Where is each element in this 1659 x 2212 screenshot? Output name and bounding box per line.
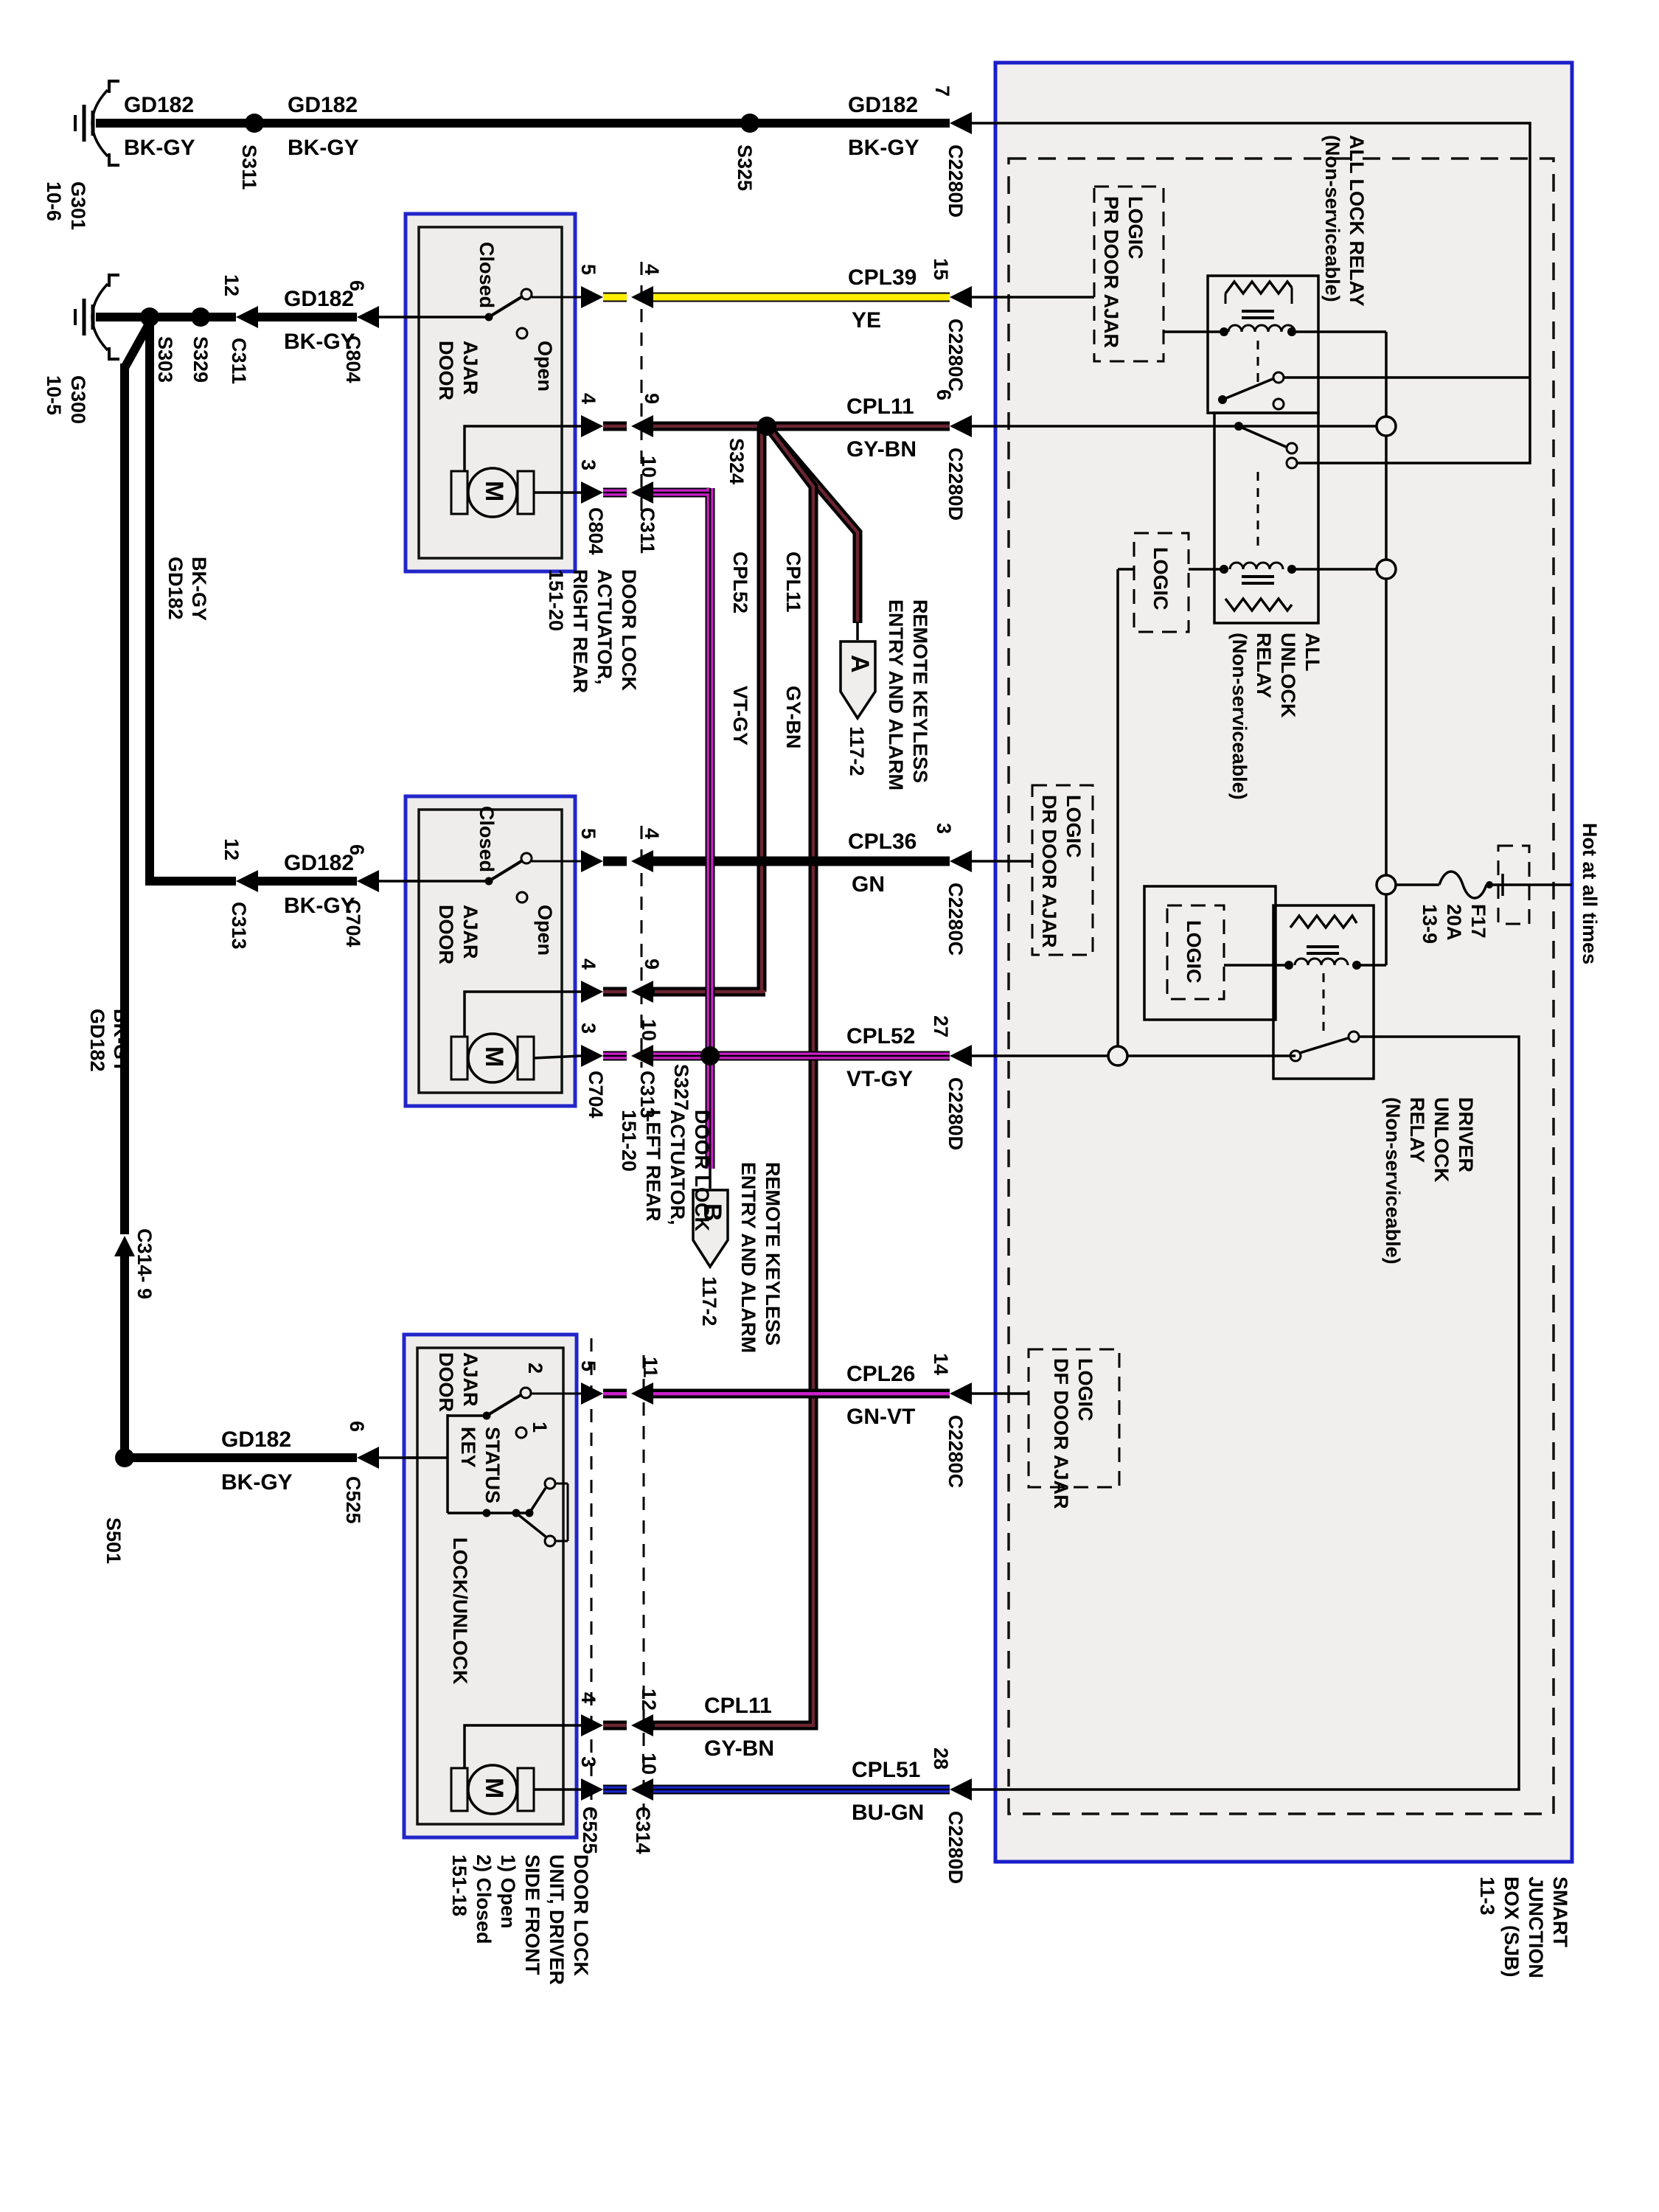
connector-arrow-icon bbox=[631, 1714, 653, 1736]
switch-position-label: Open bbox=[533, 905, 556, 956]
logic-line: DR DOOR AJAR bbox=[1037, 795, 1061, 948]
relay-name-line: ALL LOCK RELAY bbox=[1344, 135, 1368, 307]
pin-label: 4 bbox=[640, 828, 663, 839]
pin-label: 6 bbox=[345, 844, 368, 855]
splice-dot-s327 bbox=[700, 1046, 720, 1065]
pin-label: 12 bbox=[220, 274, 243, 296]
wire-label: GD182 bbox=[124, 93, 194, 118]
pin-arrow-icon bbox=[581, 1045, 603, 1067]
splice-dot-s325 bbox=[740, 114, 759, 133]
door-ajar-line: DOOR bbox=[434, 1352, 458, 1412]
switch-position-label: Closed bbox=[475, 242, 498, 308]
logic-line: PR DOOR AJAR bbox=[1099, 196, 1123, 348]
rke-page: 117-2 bbox=[845, 726, 868, 776]
pin-label: 28 bbox=[929, 1747, 952, 1770]
all-lock-relay-label: ALL LOCK RELAY (Non-serviceable) bbox=[1320, 135, 1368, 307]
sjb-name-line: BOX (SJB) bbox=[1499, 1877, 1523, 1978]
wire-color-label: GY-BN bbox=[704, 1736, 774, 1761]
connector-label: C311 bbox=[227, 338, 250, 384]
component-name-line: 1) Open bbox=[495, 1854, 520, 1985]
port-circle-icon bbox=[1377, 417, 1396, 436]
door-ajar-label: DOOR AJAR bbox=[434, 341, 482, 400]
switch-position-label: Open bbox=[533, 341, 556, 392]
relay-name-line: (Non-serviceable) bbox=[1320, 135, 1344, 307]
splice-dot-s311 bbox=[245, 114, 264, 133]
component-name: DOOR LOCK UNIT, DRIVER SIDE FRONT 1) Ope… bbox=[447, 1854, 593, 1985]
splice-label: S325 bbox=[733, 145, 756, 191]
pin-label: 6 bbox=[932, 389, 955, 400]
wiring-diagram-page: { "wires": { "gd182": {"label": "GD182",… bbox=[0, 0, 1659, 2212]
fuse-line: F17 bbox=[1466, 904, 1490, 944]
relay-name-line: (Non-serviceable) bbox=[1227, 633, 1251, 800]
connector-label: C525 bbox=[578, 1806, 601, 1854]
component-name-line: RIGHT REAR bbox=[568, 569, 592, 693]
splice-label: S327 bbox=[669, 1064, 692, 1110]
wire-color-label: VT-GY bbox=[728, 686, 751, 745]
rke-name-line: REMOTE KEYLESS bbox=[760, 1162, 785, 1353]
splice-dot-s324 bbox=[757, 417, 776, 436]
pin-arrow-icon bbox=[581, 850, 603, 872]
connector-arrow-icon bbox=[631, 1778, 653, 1801]
pin-label: 4 bbox=[640, 264, 663, 275]
door-lock-unit-box bbox=[404, 1335, 577, 1837]
connector-arrow-icon bbox=[950, 1778, 972, 1801]
door-ajar-line: AJAR bbox=[458, 1352, 482, 1412]
key-status-line: STATUS bbox=[480, 1427, 504, 1503]
splice-label: S303 bbox=[153, 336, 176, 383]
connector-label: C525 bbox=[341, 1476, 364, 1524]
connector-arrow-icon bbox=[950, 286, 972, 308]
connector-label: C2280C bbox=[944, 1415, 967, 1488]
pin-label: 9 bbox=[640, 393, 663, 404]
connector-label: C2280D bbox=[944, 1811, 967, 1884]
wire-color-label: GY-BN bbox=[782, 686, 804, 749]
logic-df-door-ajar-label: LOGIC DF DOOR AJAR bbox=[1048, 1358, 1097, 1509]
wire-label: CPL52 bbox=[728, 552, 751, 613]
wire-color-label: BK-GY bbox=[848, 136, 919, 161]
pin-label: 4 bbox=[577, 1692, 599, 1703]
splice-label: S324 bbox=[725, 438, 748, 484]
connector-label: C314 bbox=[631, 1806, 654, 1854]
connector-label: C2280C bbox=[944, 883, 967, 956]
pin-label: 4 bbox=[577, 959, 599, 970]
wire-color-label: BK-GY bbox=[124, 136, 195, 161]
wire-color-label: YE bbox=[852, 308, 881, 333]
splice-label: S501 bbox=[102, 1517, 125, 1564]
wire-label: CPL11 bbox=[782, 552, 804, 613]
motor-letter: M bbox=[479, 1778, 508, 1798]
component-name-line: ACTUATOR, bbox=[592, 569, 616, 693]
pin-label: 4 bbox=[577, 393, 599, 404]
connector-arrow-icon bbox=[236, 870, 258, 892]
connector-label: C704 bbox=[341, 900, 364, 947]
component-name-line: DOOR LOCK bbox=[616, 569, 641, 693]
wire-color-label: VT-GY bbox=[846, 1067, 913, 1092]
connector-arrow-icon bbox=[950, 850, 972, 872]
rke-name-line: ENTRY AND ALARM bbox=[883, 599, 908, 790]
component-name-line: 2) Closed bbox=[471, 1854, 495, 1985]
component-name-line: 151-18 bbox=[447, 1854, 471, 1985]
connector-arrow-icon bbox=[950, 1382, 972, 1405]
pin-arrow-icon bbox=[581, 286, 603, 308]
wire-color-label: BK-GY bbox=[221, 1470, 293, 1495]
pin-label: 9 bbox=[640, 959, 663, 970]
pin-label: 15 bbox=[929, 258, 952, 280]
connector-arrow-icon bbox=[631, 1382, 653, 1405]
door-ajar-line: AJAR bbox=[458, 905, 482, 964]
relay-name-line: UNLOCK bbox=[1429, 1097, 1453, 1265]
ground-id: G301 bbox=[66, 181, 90, 230]
connector-label: C313 bbox=[227, 902, 250, 950]
wire-label: GD182 bbox=[164, 557, 187, 620]
door-ajar-label: DOOR AJAR bbox=[434, 1352, 482, 1412]
door-ajar-line: DOOR bbox=[434, 341, 458, 400]
sjb-name-line: JUNCTION bbox=[1523, 1877, 1548, 1978]
connector-label: C2280D bbox=[944, 145, 967, 218]
component-name-line: DOOR LOCK bbox=[568, 1854, 593, 1985]
wire-color-label: GY-BN bbox=[846, 437, 917, 462]
hot-at-all-times-label: Hot at all times bbox=[1578, 823, 1601, 964]
pin-label: 3 bbox=[577, 1756, 599, 1767]
logic-line: DF DOOR AJAR bbox=[1048, 1358, 1073, 1509]
logic-line: LOGIC bbox=[1123, 196, 1147, 348]
connector-arrow-icon bbox=[950, 112, 972, 134]
wire-label: GD182 bbox=[284, 287, 354, 312]
wire-color-label: BK-GY bbox=[109, 1009, 132, 1073]
logic-label: LOGIC bbox=[1182, 920, 1205, 984]
splice-label: S311 bbox=[237, 145, 260, 190]
pin-arrow-icon bbox=[581, 415, 603, 437]
component-name: DOOR LOCK ACTUATOR, RIGHT REAR 151-20 bbox=[543, 569, 641, 693]
door-ajar-line: DOOR bbox=[434, 905, 458, 964]
pin-label: 5 bbox=[577, 1360, 599, 1371]
component-name-line: 151-20 bbox=[616, 1110, 641, 1231]
wire-label: CPL11 bbox=[846, 394, 914, 420]
rke-arrow-letter: A bbox=[845, 655, 874, 673]
pin-label: 7 bbox=[931, 86, 953, 97]
connector-label: C2280C bbox=[944, 319, 967, 392]
driver-unlock-relay-label: DRIVER UNLOCK RELAY (Non-serviceable) bbox=[1380, 1097, 1478, 1265]
pin-label: 1 bbox=[528, 1422, 551, 1433]
logic-label: LOGIC bbox=[1149, 547, 1172, 611]
relay-name-line: ALL bbox=[1300, 633, 1324, 800]
pin-label: 3 bbox=[932, 823, 955, 834]
pin-label: 3 bbox=[577, 459, 599, 470]
component-name-line: 151-20 bbox=[543, 569, 568, 693]
wire-label: CPL51 bbox=[852, 1758, 920, 1783]
pin-label: 2 bbox=[524, 1363, 546, 1374]
connector-label: C313 bbox=[636, 1071, 658, 1119]
pin-label: 5 bbox=[577, 828, 599, 839]
wire-color-label: GN-VT bbox=[846, 1405, 915, 1430]
relay-name-line: UNLOCK bbox=[1276, 633, 1300, 800]
connector-arrow-icon bbox=[114, 1236, 135, 1256]
port-circle-icon bbox=[1377, 560, 1396, 579]
rke-arrow-letter: B bbox=[698, 1203, 726, 1222]
component-name-line: LEFT REAR bbox=[641, 1110, 665, 1231]
wire-label: CPL39 bbox=[848, 265, 917, 291]
wire-label: CPL52 bbox=[846, 1024, 915, 1049]
pin-label: 12 bbox=[637, 1688, 660, 1711]
fuse-label: F17 20A 13-9 bbox=[1417, 904, 1490, 944]
port-circle-icon bbox=[1377, 875, 1396, 894]
key-status-line: KEY bbox=[456, 1427, 480, 1503]
wire-label: CPL11 bbox=[704, 1694, 772, 1719]
wire-cpl36-gn bbox=[581, 850, 1032, 872]
wire-color-label: BU-GN bbox=[852, 1801, 924, 1826]
connector-arrow-icon bbox=[357, 870, 379, 892]
fuse-line: 20A bbox=[1441, 904, 1466, 944]
wire-label: GD182 bbox=[86, 1009, 108, 1072]
logic-line: LOGIC bbox=[1073, 1358, 1097, 1509]
splice-label: S329 bbox=[189, 336, 212, 383]
pin-label: 6 bbox=[345, 1421, 368, 1432]
pin-label: 3 bbox=[577, 1023, 599, 1034]
ground-label: G301 10-6 bbox=[41, 181, 90, 230]
connector-arrow-icon bbox=[950, 415, 972, 437]
wire-gd182-left-verticals bbox=[114, 320, 419, 1469]
relay-name-line: DRIVER bbox=[1453, 1097, 1478, 1265]
connector-label: C2280D bbox=[944, 448, 967, 521]
connector-arrow-icon bbox=[357, 306, 379, 328]
component-name-line: ACTUATOR, bbox=[665, 1110, 689, 1231]
rke-name-line: REMOTE KEYLESS bbox=[908, 599, 932, 790]
wire-color-label: BK-GY bbox=[187, 557, 210, 621]
relay-name-line: RELAY bbox=[1405, 1097, 1429, 1265]
pin-label: 10 bbox=[637, 456, 660, 478]
motor-letter: M bbox=[479, 1046, 508, 1067]
wire-label: GD182 bbox=[848, 93, 918, 118]
logic-dr-door-ajar-label: LOGIC DR DOOR AJAR bbox=[1037, 795, 1085, 948]
ground-page: 10-6 bbox=[41, 181, 66, 230]
ground-id: G300 bbox=[66, 375, 90, 424]
wire-label: CPL26 bbox=[846, 1362, 915, 1387]
connector-label: C2280D bbox=[944, 1077, 967, 1150]
sjb-name: SMART JUNCTION BOX (SJB) 11-3 bbox=[1475, 1877, 1572, 1978]
rke-name: REMOTE KEYLESS ENTRY AND ALARM bbox=[736, 1162, 785, 1353]
connector-label: C804 bbox=[341, 335, 364, 383]
connector-arrow-icon bbox=[950, 1045, 972, 1067]
motor-letter: M bbox=[479, 481, 508, 501]
relay-name-line: RELAY bbox=[1251, 633, 1276, 800]
wire-color-label: GN bbox=[852, 872, 885, 897]
connector-arrow-icon bbox=[357, 1447, 379, 1469]
splice-dot-s329 bbox=[191, 307, 210, 327]
connector-label: C311 bbox=[636, 507, 658, 554]
pin-label: 6 bbox=[345, 280, 368, 291]
switch-position-label: Closed bbox=[475, 806, 498, 872]
wire-cpl26-gnvt bbox=[581, 1382, 1029, 1405]
wire-label: CPL36 bbox=[848, 829, 917, 855]
rke-name: REMOTE KEYLESS ENTRY AND ALARM bbox=[883, 599, 932, 790]
rke-page: 117-2 bbox=[698, 1276, 720, 1326]
pin-arrow-icon bbox=[581, 981, 603, 1003]
ground-label: G300 10-5 bbox=[41, 375, 90, 424]
wire-color-label: BK-GY bbox=[288, 136, 359, 161]
rke-name-line: ENTRY AND ALARM bbox=[736, 1162, 760, 1353]
all-unlock-relay-label: ALL UNLOCK RELAY (Non-serviceable) bbox=[1227, 633, 1324, 800]
component-name-line: SIDE FRONT bbox=[520, 1854, 544, 1985]
ground-page: 10-5 bbox=[41, 375, 66, 424]
connector-arrow-icon bbox=[236, 306, 258, 328]
connector-label: C704 bbox=[584, 1071, 607, 1119]
key-status-label: KEY STATUS bbox=[456, 1427, 504, 1503]
pin-arrow-icon bbox=[581, 481, 603, 504]
component-name-line: UNIT, DRIVER bbox=[544, 1854, 568, 1985]
sjb-name-line: SMART bbox=[1548, 1877, 1572, 1978]
pin-label: 10 bbox=[637, 1019, 660, 1041]
relay-name-line: (Non-serviceable) bbox=[1380, 1097, 1405, 1265]
wire-label: GD182 bbox=[221, 1427, 291, 1453]
door-ajar-line: AJAR bbox=[458, 341, 482, 400]
splice-dot-s501 bbox=[115, 1448, 134, 1467]
pin-label: 5 bbox=[577, 264, 599, 275]
logic-pr-door-ajar-label: LOGIC PR DOOR AJAR bbox=[1099, 196, 1147, 348]
pin-label: 12 bbox=[220, 838, 243, 860]
pin-label: 14 bbox=[929, 1353, 952, 1375]
wire-label: GD182 bbox=[284, 851, 354, 876]
connector-label: C804 bbox=[584, 507, 607, 555]
door-ajar-label: DOOR AJAR bbox=[434, 905, 482, 964]
rke-arrow-a-icon bbox=[841, 641, 875, 718]
fuse-line: 13-9 bbox=[1417, 904, 1441, 944]
connector-label: C314- 9 bbox=[133, 1228, 156, 1299]
logic-line: LOGIC bbox=[1061, 795, 1085, 948]
lock-unlock-label: LOCK/UNLOCK bbox=[448, 1537, 471, 1684]
port-circle-icon bbox=[1108, 1046, 1127, 1065]
sjb-box bbox=[995, 63, 1572, 1862]
pin-label: 10 bbox=[637, 1753, 660, 1775]
pin-label: 11 bbox=[639, 1357, 661, 1378]
sjb-name-line: 11-3 bbox=[1475, 1877, 1499, 1978]
wire-label: GD182 bbox=[288, 93, 358, 118]
pin-label: 27 bbox=[929, 1015, 952, 1037]
